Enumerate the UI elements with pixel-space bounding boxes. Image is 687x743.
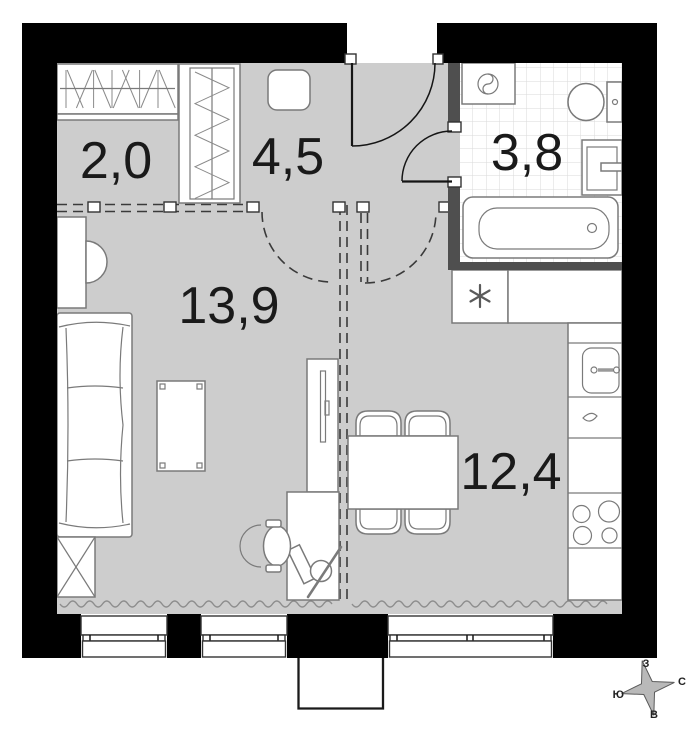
appliance-asterisk-icon [452, 270, 508, 323]
washing-machine-icon [462, 63, 515, 104]
bathroom-sink-icon [582, 140, 622, 195]
balcony-icon [299, 658, 384, 709]
compass-north: С [678, 676, 686, 688]
chair-icon [356, 411, 401, 436]
floor-plan-svg: 2,0 4,5 3,8 13,9 12,4 З С Ю В [0, 0, 687, 743]
toilet-icon [568, 82, 622, 122]
kitchen-counter [508, 270, 622, 323]
window-icon [81, 616, 167, 657]
chair-icon [405, 509, 450, 534]
kitchen-counter-right [568, 323, 622, 600]
chair-icon [405, 411, 450, 436]
compass-rose: З С Ю В [613, 655, 686, 721]
window-icon [388, 616, 553, 657]
sofa-icon [57, 313, 132, 537]
desk-icon [287, 492, 341, 600]
floor-plan: 2,0 4,5 3,8 13,9 12,4 З С Ю В [0, 0, 687, 743]
pouf-icon [268, 70, 310, 110]
compass-south: Ю [613, 689, 624, 701]
room-label-living-room: 13,9 [178, 277, 279, 335]
room-label-closet: 2,0 [80, 132, 152, 190]
room-label-kitchen: 12,4 [460, 443, 561, 501]
room-label-hallway: 4,5 [252, 128, 324, 186]
compass-west: З [643, 658, 650, 670]
bathtub-icon [463, 197, 618, 258]
chair-icon [356, 509, 401, 534]
wardrobe-hanging-icon [57, 64, 178, 120]
dining-table-icon [348, 436, 458, 509]
room-label-bathroom: 3,8 [491, 124, 563, 182]
side-table-icon [57, 537, 95, 597]
coffee-table-icon [157, 381, 205, 471]
wardrobe-tall-icon [179, 64, 240, 203]
tv-unit-icon [307, 359, 338, 492]
window-icon [201, 616, 287, 657]
compass-east: В [650, 709, 658, 721]
